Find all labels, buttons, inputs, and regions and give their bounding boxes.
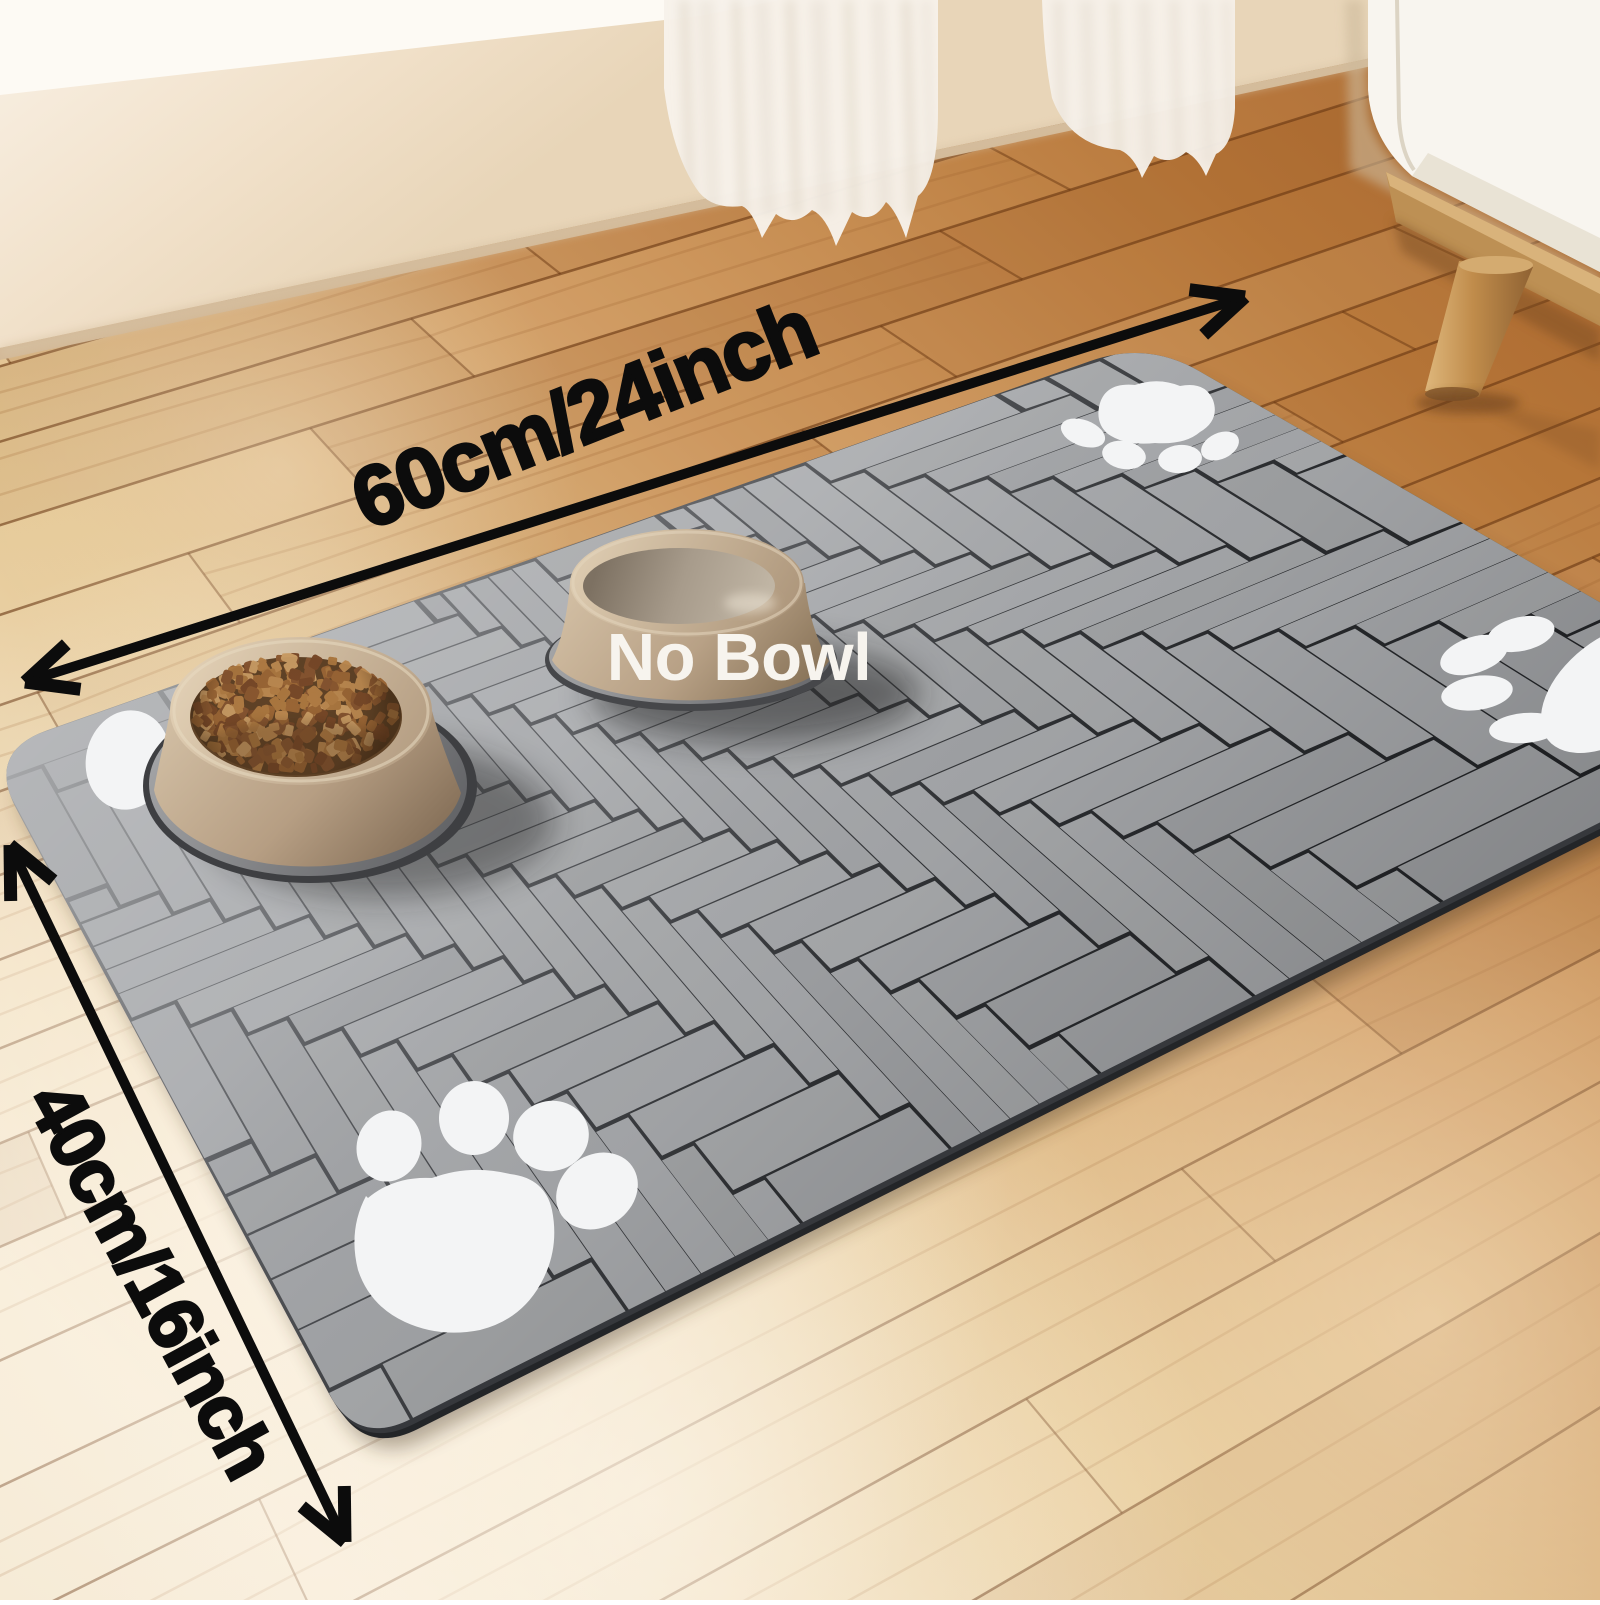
svg-text:No Bowl: No Bowl <box>607 620 871 695</box>
